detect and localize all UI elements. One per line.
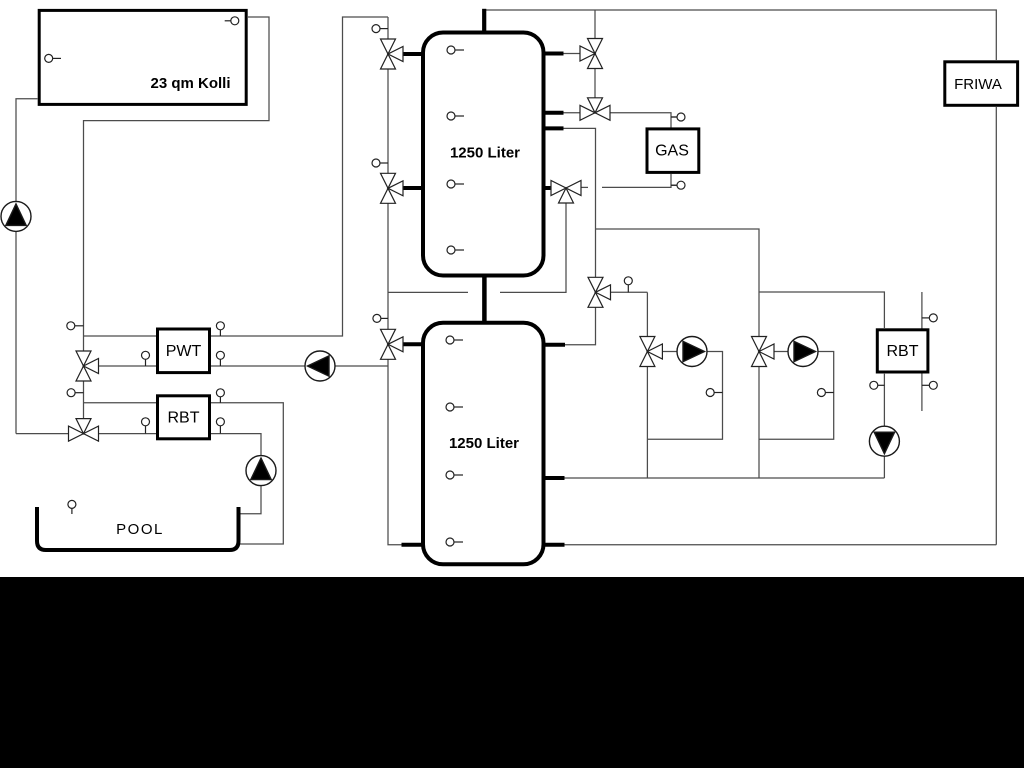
svg-text:POOL: POOL: [116, 521, 164, 538]
svg-text:RBT: RBT: [887, 343, 919, 360]
svg-text:GAS: GAS: [655, 143, 689, 160]
svg-text:1250 Liter: 1250 Liter: [450, 145, 520, 162]
svg-text:PWT: PWT: [166, 343, 202, 360]
svg-text:1250 Liter: 1250 Liter: [449, 435, 519, 452]
svg-text:FRIWA: FRIWA: [954, 76, 1002, 93]
svg-text:RBT: RBT: [168, 410, 200, 427]
svg-text:23 qm Kolli: 23 qm Kolli: [150, 75, 230, 92]
